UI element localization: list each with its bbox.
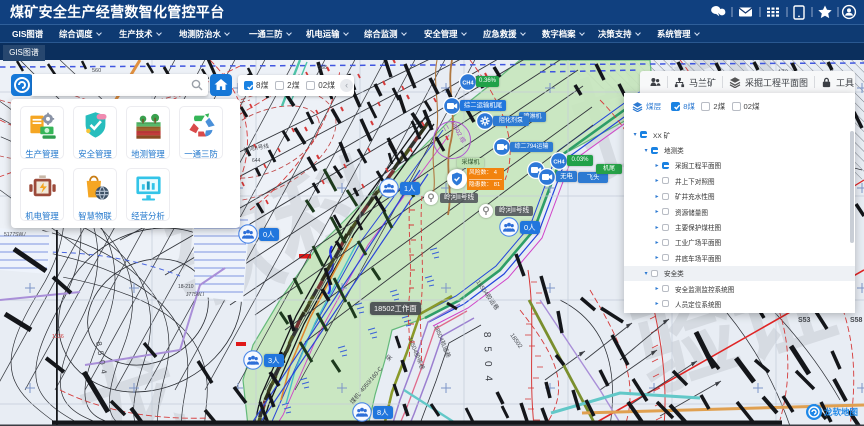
svg-text:CH4: CH4 [553,159,565,165]
svg-text:CH4: CH4 [462,80,474,86]
